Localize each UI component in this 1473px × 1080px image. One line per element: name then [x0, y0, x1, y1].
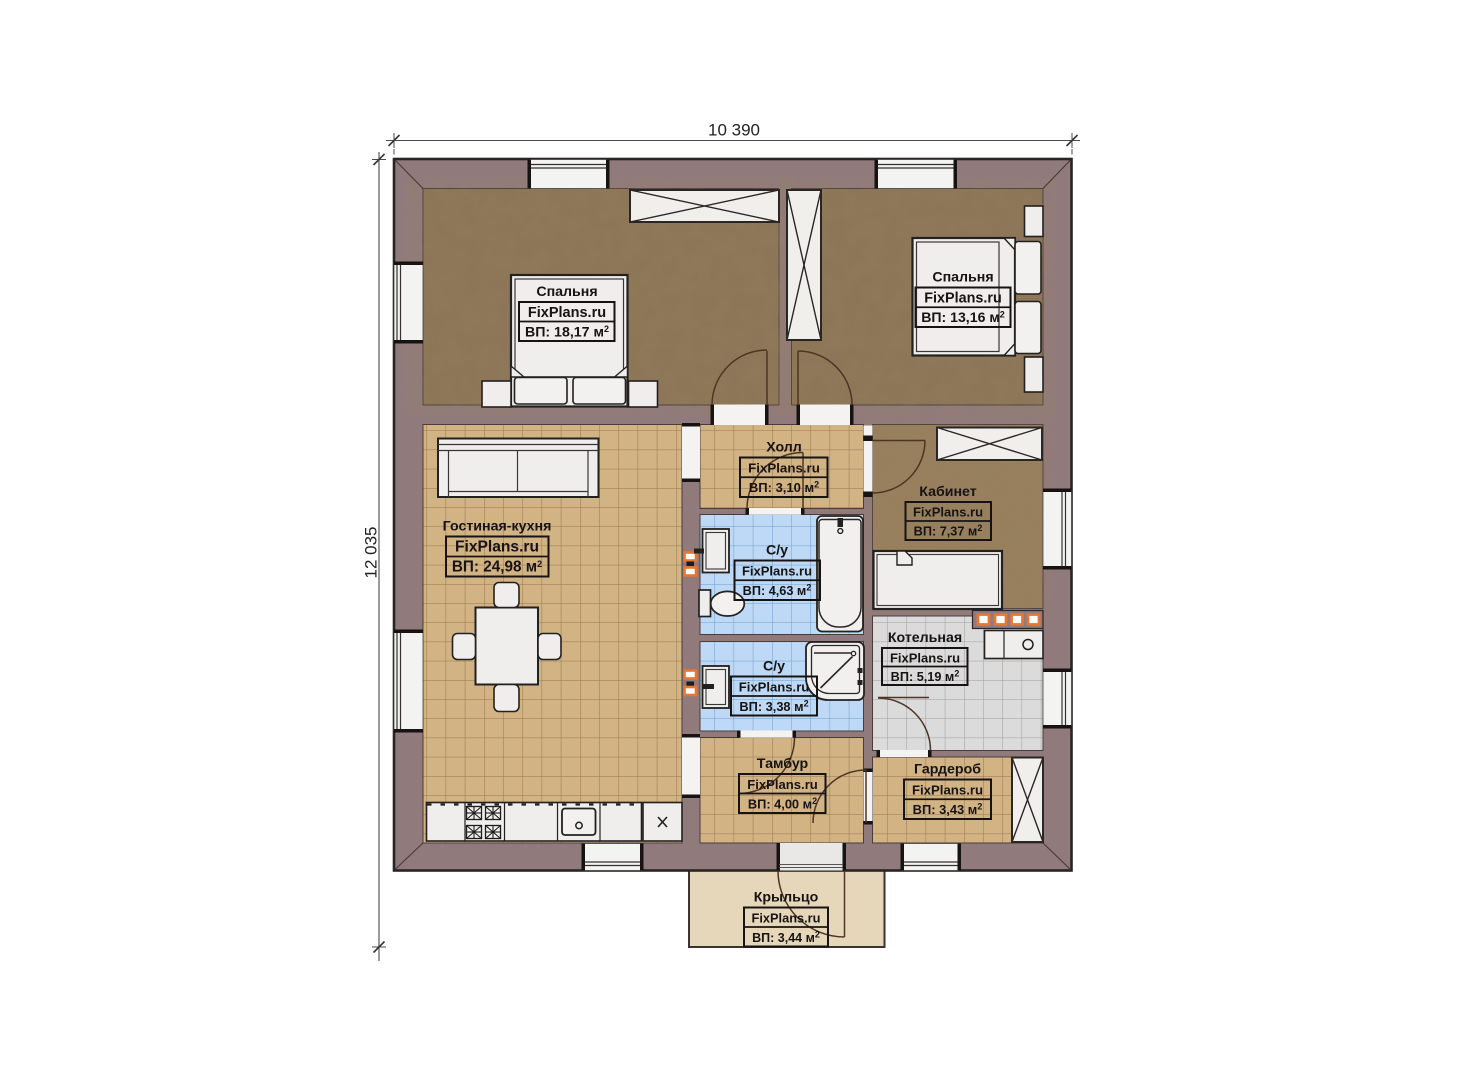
svg-text:FixPlans.ru: FixPlans.ru [748, 460, 820, 475]
svg-text:FixPlans.ru: FixPlans.ru [455, 539, 539, 556]
svg-text:12 035: 12 035 [362, 527, 381, 579]
svg-text:ВП: 3,38 м2: ВП: 3,38 м2 [739, 698, 808, 714]
svg-text:FixPlans.ru: FixPlans.ru [747, 777, 818, 792]
svg-text:ВП: 3,44 м2: ВП: 3,44 м2 [752, 929, 820, 945]
svg-text:10 390: 10 390 [708, 121, 760, 140]
svg-text:Спальня: Спальня [536, 284, 597, 300]
svg-text:ВП: 4,00 м2: ВП: 4,00 м2 [748, 796, 817, 812]
svg-text:FixPlans.ru: FixPlans.ru [742, 563, 812, 578]
svg-text:FixPlans.ru: FixPlans.ru [913, 505, 983, 520]
svg-text:Холл: Холл [766, 440, 802, 456]
svg-text:FixPlans.ru: FixPlans.ru [924, 290, 1002, 306]
svg-text:Кабинет: Кабинет [919, 484, 976, 500]
svg-text:FixPlans.ru: FixPlans.ru [739, 679, 810, 694]
svg-text:Крыльцо: Крыльцо [754, 890, 819, 906]
svg-text:С/у: С/у [766, 543, 788, 559]
svg-text:Гостиная-кухня: Гостиная-кухня [443, 519, 552, 535]
svg-text:ВП: 24,98 м2: ВП: 24,98 м2 [452, 559, 542, 576]
svg-text:FixPlans.ru: FixPlans.ru [912, 782, 983, 797]
svg-text:ВП: 4,63 м2: ВП: 4,63 м2 [743, 583, 812, 599]
svg-text:ВП: 7,37 м2: ВП: 7,37 м2 [914, 523, 983, 539]
svg-text:ВП: 18,17 м2: ВП: 18,17 м2 [525, 324, 609, 341]
svg-text:Тамбур: Тамбур [757, 756, 809, 772]
svg-text:ВП: 3,43 м2: ВП: 3,43 м2 [913, 802, 983, 818]
svg-text:Спальня: Спальня [932, 270, 993, 286]
svg-text:FixPlans.ru: FixPlans.ru [528, 305, 606, 321]
svg-text:Гардероб: Гардероб [914, 762, 981, 778]
svg-text:ВП: 5,19 м2: ВП: 5,19 м2 [891, 668, 960, 684]
svg-text:ВП: 13,16 м2: ВП: 13,16 м2 [921, 309, 1005, 325]
svg-text:ВП: 3,10 м2: ВП: 3,10 м2 [749, 480, 819, 496]
svg-text:FixPlans.ru: FixPlans.ru [890, 650, 960, 665]
svg-text:FixPlans.ru: FixPlans.ru [752, 910, 821, 925]
svg-text:Котельная: Котельная [888, 630, 962, 646]
svg-text:С/у: С/у [763, 659, 785, 675]
